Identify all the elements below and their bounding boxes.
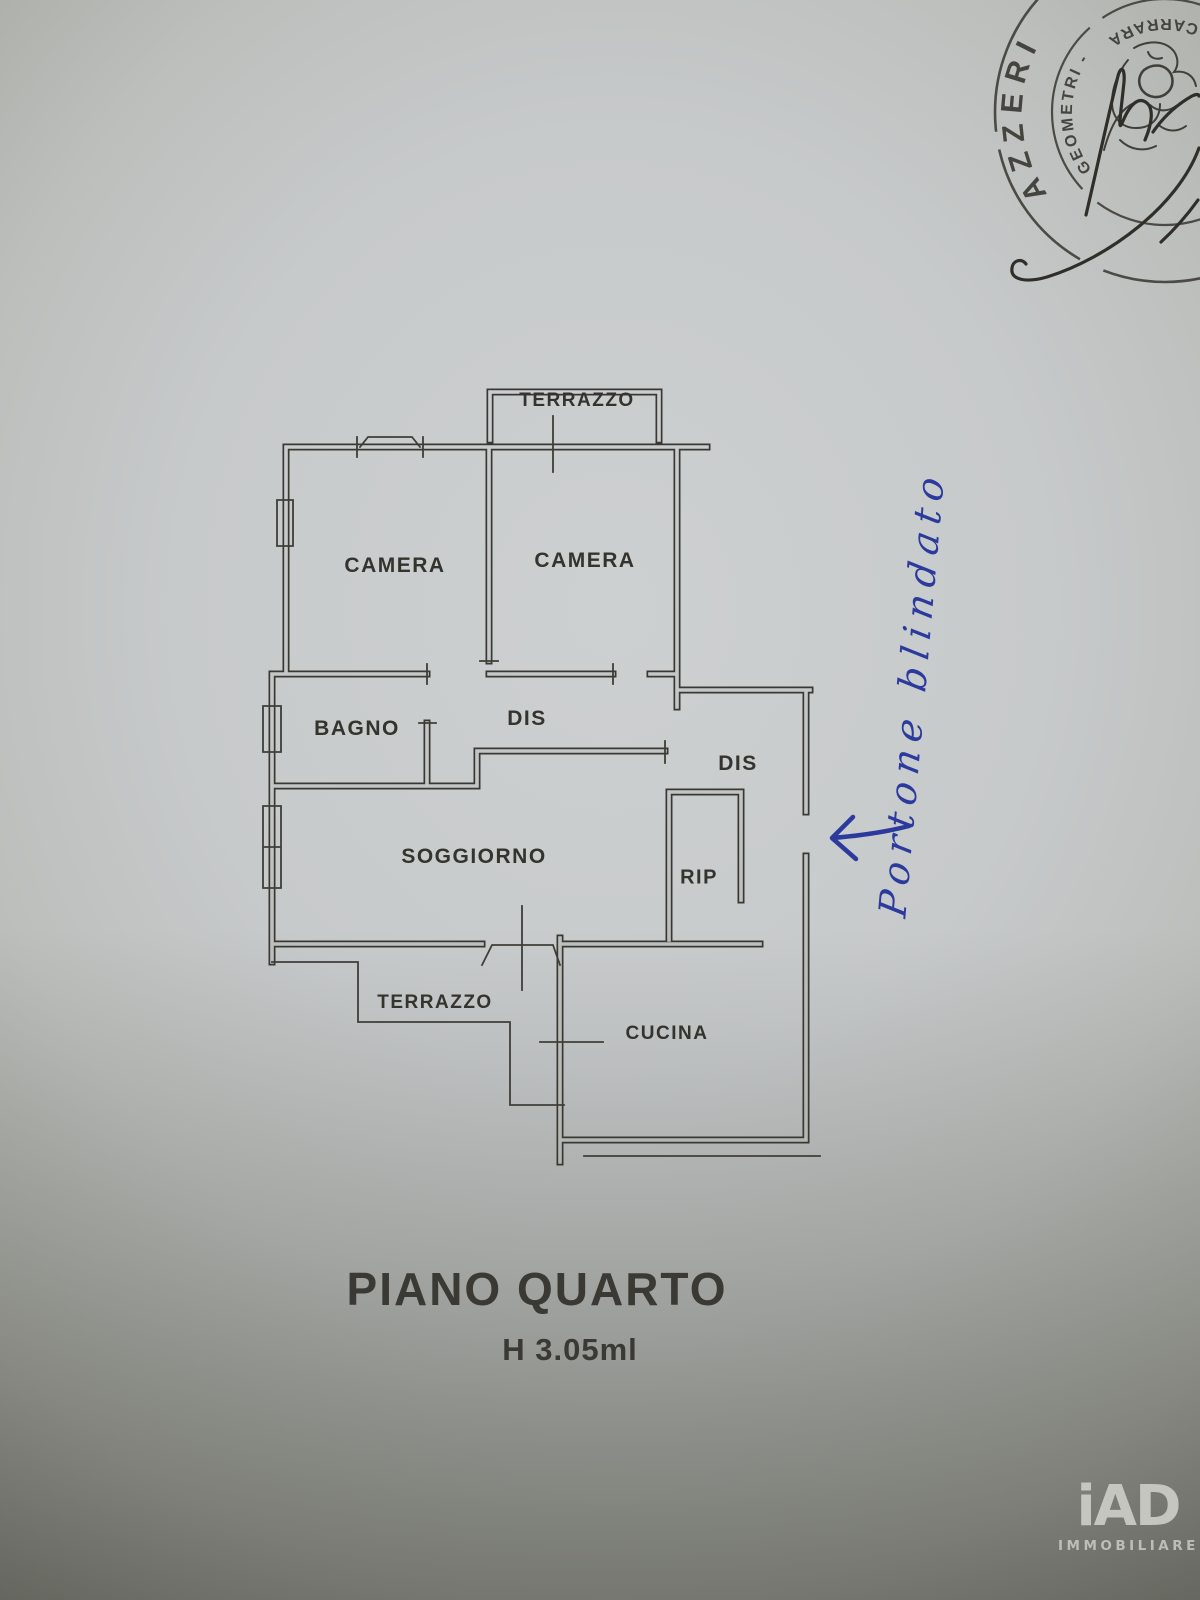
floor-title: PIANO QUARTO xyxy=(347,1263,728,1315)
room-label-dis-center: DIS xyxy=(507,707,547,731)
walls-outline xyxy=(272,392,810,1162)
stamp-inner-text-top: - CARRARA - xyxy=(960,0,1200,50)
room-label-cucina: CUCINA xyxy=(626,1023,709,1045)
svg-text:GEOMETRI -: GEOMETRI - xyxy=(1059,50,1095,177)
room-label-rip: RIP xyxy=(680,867,718,890)
brand-logo: iAD IMMOBILIARE xyxy=(1058,1478,1198,1554)
walls-hollow xyxy=(272,392,810,1162)
room-label-dis-right: DIS xyxy=(718,752,758,776)
scanned-floor-plan-photo: TERRAZZO CAMERA CAMERA BAGNO DIS DIS SOG… xyxy=(0,0,1200,1600)
stamp-emblem xyxy=(1104,42,1196,150)
room-label-soggiorno: SOGGIORNO xyxy=(401,845,546,869)
room-label-camera-right: CAMERA xyxy=(534,549,635,573)
svg-text:- CARRARA -: - CARRARA - xyxy=(960,0,1200,50)
surveyor-stamp: AZZERI GEOMETRI - - CARRARA - xyxy=(960,0,1200,330)
brand-logo-subtitle: IMMOBILIARE xyxy=(1058,1538,1198,1554)
room-label-terrazzo-bottom: TERRAZZO xyxy=(377,992,492,1014)
room-label-bagno: BAGNO xyxy=(314,717,400,741)
stamp-inner-text-left: GEOMETRI - xyxy=(1059,50,1095,177)
room-label-terrazzo-top: TERRAZZO xyxy=(519,390,634,412)
room-label-camera-left: CAMERA xyxy=(344,554,445,578)
brand-logo-text: iAD xyxy=(1058,1478,1198,1537)
page-title: PIANO QUARTO xyxy=(347,1262,728,1316)
ceiling-height-note: H 3.05ml xyxy=(502,1332,638,1368)
